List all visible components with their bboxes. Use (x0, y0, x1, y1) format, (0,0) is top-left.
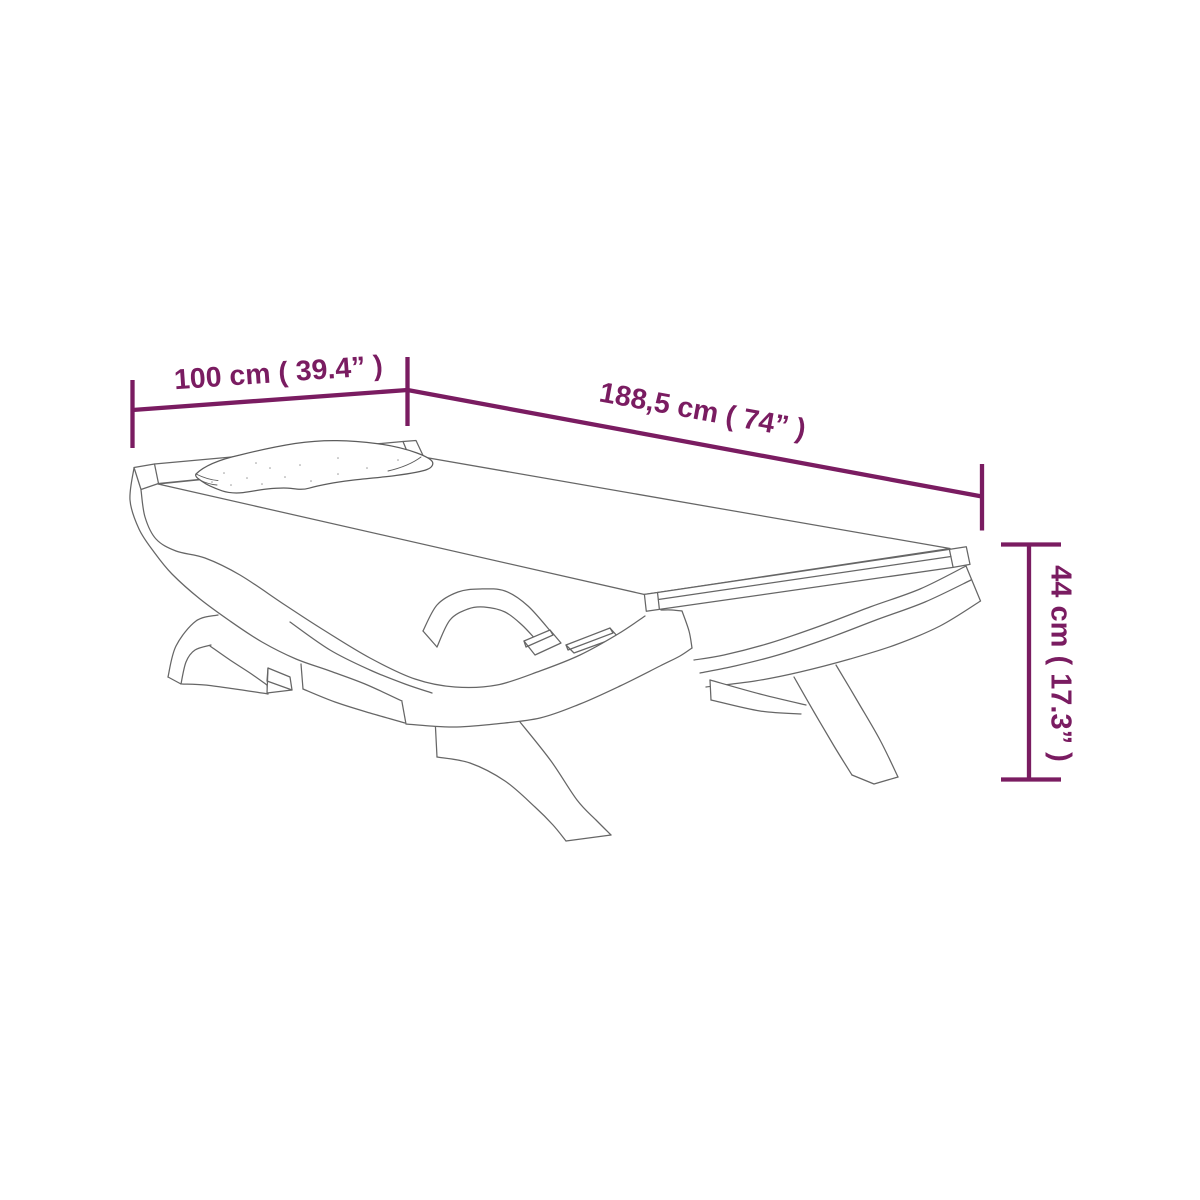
svg-text:44 cm ( 17.3” ): 44 cm ( 17.3” ) (1045, 565, 1077, 762)
